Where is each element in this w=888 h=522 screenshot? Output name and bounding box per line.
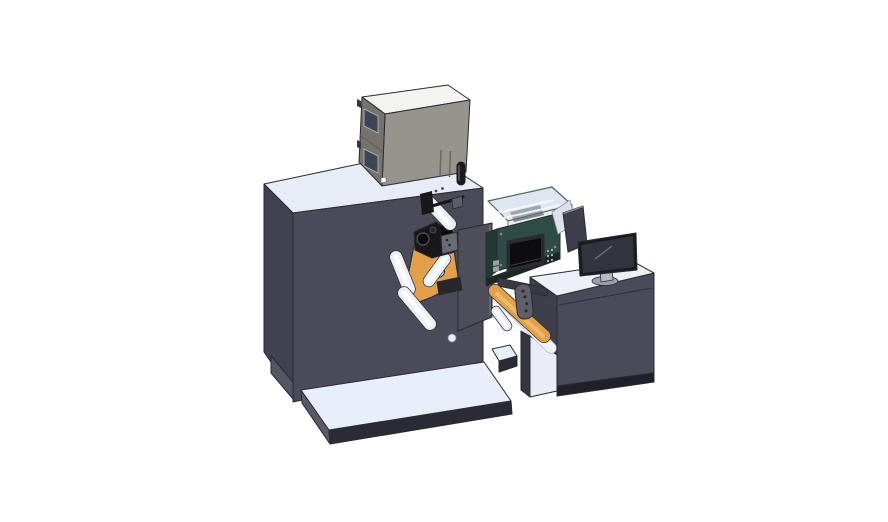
electrical-control-box: [357, 85, 470, 186]
box-label-plate: [381, 177, 386, 183]
top-screw: [435, 190, 438, 193]
machine-foot-pedestal: [492, 345, 517, 372]
top-screw: [441, 187, 444, 190]
roller: [496, 311, 507, 326]
mechanism-bore: [417, 233, 429, 245]
hinge-tab: [357, 99, 361, 108]
enclosure-connector: [493, 266, 499, 272]
bracket-body: [514, 283, 534, 319]
box-vent-slot: [450, 151, 451, 177]
cad-render-stage: [0, 0, 888, 522]
sensor-bracket: [514, 283, 534, 319]
desk-rear-leg: [521, 331, 530, 397]
sensor-plate: [441, 232, 458, 254]
mechanism-bore-small: [430, 227, 436, 233]
enclosure-screw: [500, 264, 503, 267]
box-vent-slot: [440, 150, 441, 176]
sensor-plate-hole: [448, 244, 451, 247]
machine-left-face: [264, 184, 293, 394]
front-port-circle: [448, 334, 456, 342]
printer-enclosure: [486, 187, 572, 286]
enclosure-screw: [500, 233, 503, 236]
enclosure-screw: [554, 246, 557, 249]
mechanism-top-bracket: [420, 191, 434, 215]
enclosure-connector: [493, 260, 499, 266]
cad-render-canvas: [0, 0, 888, 522]
sensor-plate-hole: [446, 239, 449, 242]
